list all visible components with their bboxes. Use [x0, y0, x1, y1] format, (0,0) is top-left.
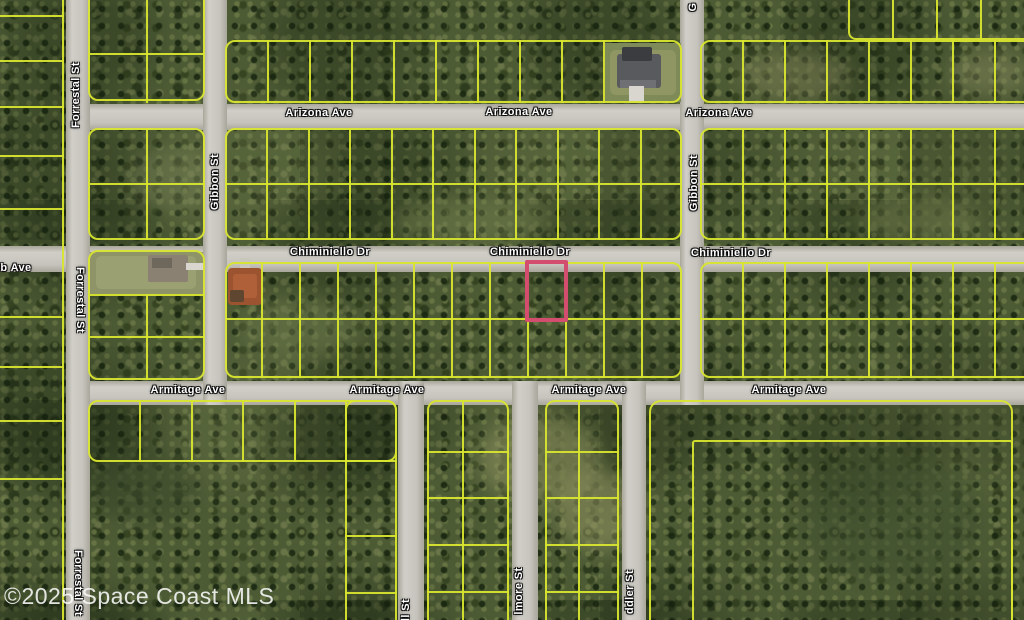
parcel-line [474, 128, 476, 240]
parcel-line [603, 262, 605, 378]
parcel-line [345, 400, 347, 462]
parcel-line [0, 155, 64, 157]
parcel-line [351, 40, 353, 103]
street-label-chiminiello-dr: Chiminiello Dr [490, 246, 570, 258]
parcel-line [545, 591, 619, 593]
parcel-block-boundary [545, 400, 619, 620]
parcel-line [0, 478, 64, 480]
parcel-line [146, 0, 148, 103]
parcel-line [393, 40, 395, 103]
parcel-line [267, 40, 269, 103]
parcel-line [640, 128, 642, 240]
street-label-arizona-ave: Arizona Ave [285, 107, 352, 119]
parcel-line [432, 128, 434, 240]
street-label-chiminiello-dr: Chiminiello Dr [691, 247, 771, 259]
parcel-line [545, 544, 619, 546]
street-label-b-ave: b Ave [0, 262, 31, 274]
parcel-line [308, 128, 310, 240]
parcel-line [936, 0, 938, 40]
parcel-line [994, 262, 996, 378]
parcel-line [294, 400, 296, 462]
parcel-line [742, 128, 744, 240]
parcel-line [603, 40, 605, 103]
street-label-armitage-ave: Armitage Ave [552, 384, 627, 396]
parcel-line [578, 400, 580, 620]
parcel-block-boundary [225, 262, 682, 378]
parcel-block-boundary [692, 440, 1013, 620]
parcel-line [242, 400, 244, 462]
parcel-line [826, 128, 828, 240]
parcel-line [299, 262, 301, 378]
parcel-line [868, 40, 870, 103]
street-label-lmore-st: lmore St [513, 567, 525, 614]
parcel-block-boundary [427, 400, 509, 620]
parcel-line [266, 128, 268, 240]
parcel-line [309, 40, 311, 103]
parcel-line [700, 318, 1024, 320]
parcel-line [427, 591, 509, 593]
parcel-line [742, 262, 744, 378]
parcel-line [0, 208, 64, 210]
parcel-line [0, 366, 64, 368]
parcel-line [427, 451, 509, 453]
parcel-block-boundary [225, 40, 682, 103]
parcel-line [952, 128, 954, 240]
street-label-gibbon-st: Gibbon St [209, 154, 221, 210]
parcel-line [700, 183, 1024, 185]
parcel-line [375, 262, 377, 378]
parcel-line [826, 40, 828, 103]
street-label-ll-st: ll St [400, 599, 412, 620]
street-label-gibbon-st: Gibbon St [688, 155, 700, 211]
parcel-line [868, 128, 870, 240]
parcel-line [826, 262, 828, 378]
street-label-arizona-ave: Arizona Ave [685, 107, 752, 119]
parcel-line [910, 40, 912, 103]
parcel-line [191, 400, 193, 462]
parcel-line [910, 128, 912, 240]
street-label-forrestal-st: Forrestal St [70, 62, 82, 128]
parcel-line [489, 262, 491, 378]
parcel-line [980, 0, 982, 40]
parcel-line [451, 262, 453, 378]
road-ll-st [398, 381, 424, 620]
parcel-line [462, 400, 464, 620]
parcel-line [641, 262, 643, 378]
parcel-line [62, 0, 64, 620]
parcel-line [742, 40, 744, 103]
street-label-armitage-ave: Armitage Ave [350, 384, 425, 396]
parcel-line [139, 400, 141, 462]
street-label-forrestal-st: Forrestal St [74, 267, 86, 333]
parcel-line [0, 15, 64, 17]
parcel-line [349, 128, 351, 240]
parcel-line [892, 0, 894, 40]
parcel-line [952, 40, 954, 103]
parcel-line [427, 497, 509, 499]
parcel-block-boundary [345, 400, 397, 620]
street-label-armitage-ave: Armitage Ave [752, 384, 827, 396]
parcel-line [545, 497, 619, 499]
parcel-line [391, 128, 393, 240]
parcel-line [337, 262, 339, 378]
parcel-line [519, 40, 521, 103]
parcel-line [0, 316, 64, 318]
street-label-armitage-ave: Armitage Ave [151, 384, 226, 396]
parcel-line [994, 40, 996, 103]
parcel-block-boundary [700, 40, 1024, 103]
aerial-parcel-map: ©2025 Space Coast MLS Arizona AveArizona… [0, 0, 1024, 620]
street-label-ddler-st: ddler St [624, 570, 636, 614]
parcel-line [994, 128, 996, 240]
parcel-line [0, 60, 64, 62]
street-label-chiminiello-dr: Chiminiello Dr [290, 246, 370, 258]
parcel-line [598, 128, 600, 240]
parcel-line [515, 128, 517, 240]
highlighted-parcel [525, 260, 568, 322]
parcel-line [784, 128, 786, 240]
street-label-g: G [687, 3, 699, 12]
mls-watermark: ©2025 Space Coast MLS [4, 583, 274, 610]
parcel-line [345, 535, 397, 537]
parcel-line [868, 262, 870, 378]
parcel-line [261, 262, 263, 378]
parcel-line [0, 106, 64, 108]
parcel-line [435, 40, 437, 103]
parcel-line [477, 40, 479, 103]
parcel-line [557, 128, 559, 240]
parcel-line [0, 420, 64, 422]
street-label-arizona-ave: Arizona Ave [485, 106, 552, 118]
parcel-line [910, 262, 912, 378]
parcel-line [952, 262, 954, 378]
parcel-line [413, 262, 415, 378]
parcel-line [545, 451, 619, 453]
parcel-line [345, 592, 397, 594]
terrain-patch [90, 452, 200, 524]
parcel-line [784, 262, 786, 378]
parcel-line [225, 183, 682, 185]
parcel-line [427, 544, 509, 546]
parcel-line [225, 318, 682, 320]
parcel-line [146, 294, 148, 380]
parcel-line [146, 128, 148, 240]
parcel-line [784, 40, 786, 103]
parcel-line [345, 460, 397, 462]
parcel-line [561, 40, 563, 103]
parcel-block-boundary [700, 262, 1024, 378]
